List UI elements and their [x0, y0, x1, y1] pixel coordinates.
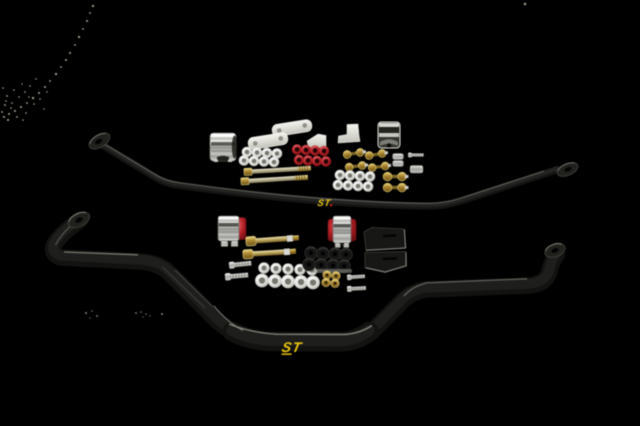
svg-text:ST: ST: [316, 198, 332, 209]
svg-text:ST: ST: [280, 339, 304, 355]
